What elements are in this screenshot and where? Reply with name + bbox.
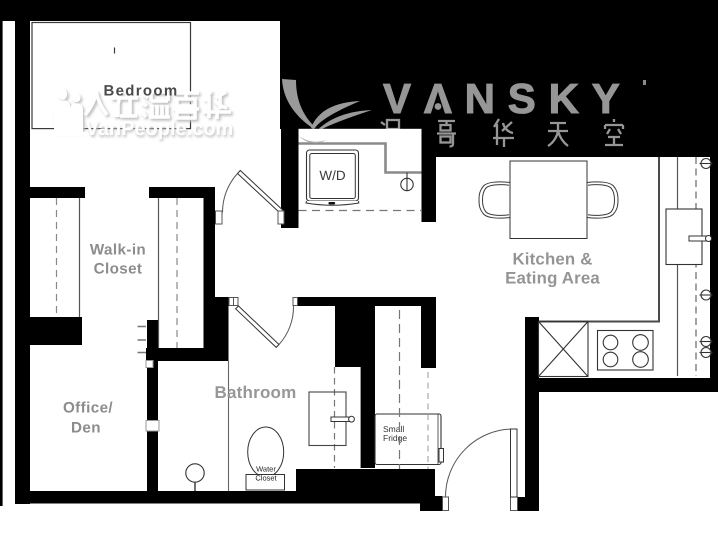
- svg-text:Water: Water: [256, 465, 276, 474]
- svg-text:Bedroom: Bedroom: [104, 83, 179, 100]
- svg-text:Walk-in: Walk-in: [90, 242, 146, 259]
- svg-text:Den: Den: [71, 420, 101, 437]
- svg-text:Kitchen &: Kitchen &: [512, 249, 592, 268]
- svg-text:Eating Area: Eating Area: [505, 268, 600, 287]
- svg-text:VanPeople.com: VanPeople.com: [86, 118, 234, 140]
- svg-text:Bathroom: Bathroom: [215, 383, 297, 402]
- svg-text:W/D: W/D: [319, 168, 345, 183]
- svg-text:Office/: Office/: [63, 399, 113, 416]
- svg-text:Closet: Closet: [255, 474, 277, 483]
- svg-text:Fridge: Fridge: [383, 433, 407, 443]
- svg-text:VΛNSKY: VΛNSKY: [383, 75, 633, 122]
- svg-text:Closet: Closet: [94, 261, 143, 278]
